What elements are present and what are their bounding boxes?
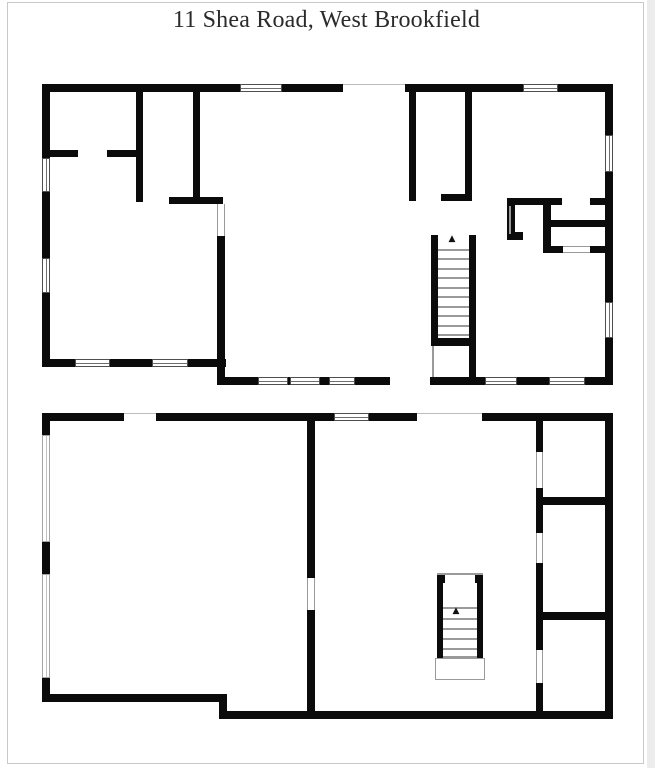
floorplan-lower: ▲	[0, 0, 655, 768]
wall-segment	[477, 578, 483, 658]
wall-segment	[536, 488, 543, 533]
wall-opening	[124, 413, 156, 421]
wall-segment	[219, 711, 613, 719]
door-opening	[536, 650, 543, 683]
stair-tread-line	[443, 648, 477, 650]
wall-segment	[42, 694, 227, 702]
door-opening	[536, 533, 543, 563]
wall-segment	[540, 612, 613, 620]
wall-opening	[417, 413, 482, 421]
door-opening	[536, 452, 543, 488]
stair-tread-line	[443, 638, 477, 640]
window-symbol	[42, 435, 50, 542]
stairs-up-arrow-icon: ▲	[450, 607, 462, 617]
stair-lower-outline	[435, 658, 485, 680]
window-symbol	[42, 574, 50, 678]
window-symbol	[334, 413, 369, 421]
stair-tread-line	[443, 628, 477, 630]
wall-segment	[540, 497, 613, 505]
wall-segment	[307, 413, 315, 578]
wall-segment	[307, 610, 315, 719]
stair-tread-line	[437, 573, 483, 575]
door-opening	[307, 578, 315, 610]
stair-tread-line	[443, 618, 477, 620]
wall-segment	[536, 683, 543, 715]
wall-segment	[536, 421, 543, 452]
wall-segment	[536, 563, 543, 650]
wall-segment	[605, 413, 613, 719]
